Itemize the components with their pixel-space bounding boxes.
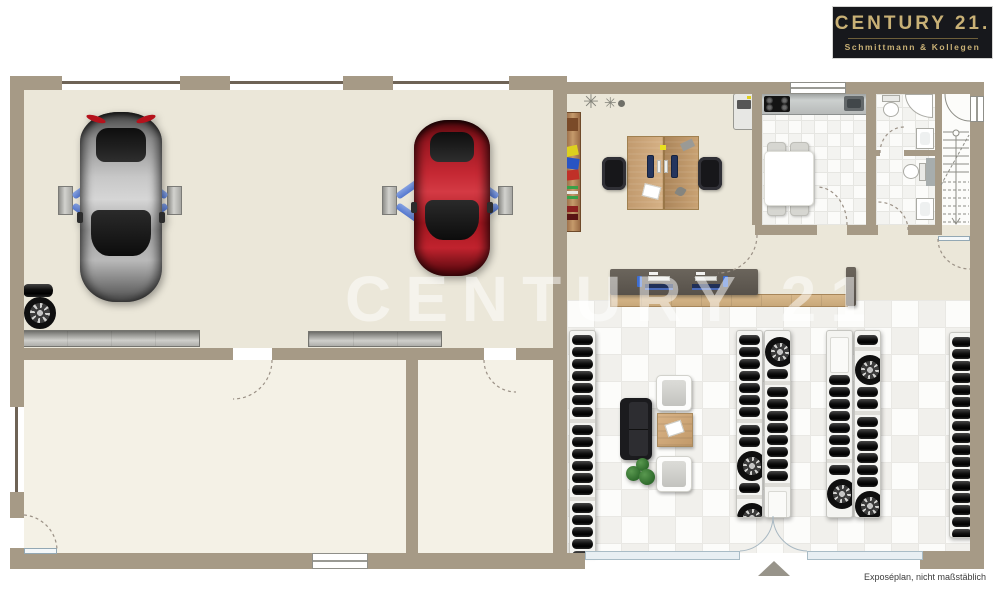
- tire-side: [739, 483, 760, 493]
- toilet-tank: [919, 163, 926, 181]
- stairwell-floor: [942, 94, 970, 225]
- tire-side: [952, 433, 972, 443]
- wall-bottom-a: [10, 553, 312, 569]
- armchair: [656, 375, 692, 411]
- basin-bowl: [920, 202, 930, 216]
- tire-side: [572, 371, 593, 381]
- tire-side: [829, 411, 850, 421]
- shelf-divider: [765, 483, 790, 487]
- kitchen-sink: [844, 96, 864, 111]
- wheel-face-item: [827, 479, 853, 509]
- garage-door-band: [10, 81, 567, 84]
- counter-device: [723, 276, 728, 287]
- wall-top-right-a: [553, 82, 790, 94]
- wall-top-pillar-2: [180, 76, 230, 90]
- tire-side: [857, 453, 878, 463]
- tire-side: [739, 347, 760, 357]
- burner: [781, 104, 788, 111]
- tire-side: [952, 517, 972, 527]
- workbench-left: [22, 330, 200, 347]
- tire-side: [952, 349, 972, 359]
- tire-side: [952, 481, 972, 491]
- shelf-binder: [566, 196, 578, 199]
- sticky-note: [660, 145, 666, 150]
- wall-kitchen-wc: [866, 94, 876, 225]
- side-mirror: [411, 202, 417, 213]
- storage-room-left-floor: [24, 360, 406, 553]
- tire-side: [857, 465, 878, 475]
- basin-bowl: [920, 132, 930, 145]
- spare-wheel: [24, 297, 56, 329]
- shelf-books: [566, 214, 578, 220]
- counter-wood-front: [610, 294, 848, 307]
- tire-side: [572, 461, 593, 471]
- tire-side: [739, 407, 760, 417]
- scale-disclaimer: Exposéplan, nicht maßstäblich: [864, 572, 986, 582]
- shelf-divider: [827, 459, 852, 463]
- tire-side: [857, 417, 878, 427]
- wall-workshop-divider-a: [10, 348, 233, 360]
- coat-stand-base: [618, 100, 625, 107]
- shelf-box: [566, 118, 578, 131]
- tire-side: [572, 485, 593, 495]
- counter-monitor: [692, 284, 720, 290]
- armchair-seat: [662, 380, 686, 406]
- plant-leaves: [639, 469, 655, 485]
- toilet-bowl: [903, 164, 919, 179]
- wall-wc-stairs: [935, 94, 942, 225]
- wheel-face-item: [737, 451, 763, 481]
- keyboard: [657, 160, 661, 173]
- lift-post: [498, 186, 513, 215]
- tire-side: [857, 399, 878, 409]
- tire-side: [767, 459, 788, 469]
- side-mirror: [77, 212, 83, 223]
- counter-keyboard: [648, 276, 670, 281]
- side-mirror: [159, 212, 165, 223]
- tire-side: [572, 437, 593, 447]
- logo-subtitle: Schmittmann & Kollegen: [845, 42, 981, 52]
- tire-side: [857, 429, 878, 439]
- burner: [766, 97, 773, 104]
- tire-side: [952, 409, 972, 419]
- tire-side: [767, 399, 788, 409]
- tire-side: [739, 359, 760, 369]
- wall-top-pillar-3: [343, 76, 393, 90]
- lift-post: [58, 186, 73, 215]
- wall-wc-bottom-a: [847, 225, 878, 235]
- office-chair: [698, 157, 722, 190]
- tire-side: [952, 529, 972, 538]
- lift-post: [382, 186, 397, 215]
- wheel-face-item: [855, 491, 881, 518]
- counter-monitor: [645, 284, 673, 290]
- shelf-divider: [570, 497, 595, 501]
- red-car: [414, 120, 490, 276]
- workbench-right: [308, 331, 442, 347]
- tire-side: [739, 371, 760, 381]
- coat-stand: ✳: [583, 93, 599, 112]
- washbasin: [916, 128, 934, 149]
- tire-side: [829, 447, 850, 457]
- wall-top-right-b: [846, 82, 984, 94]
- plant: [626, 458, 656, 486]
- counter-card: [696, 272, 705, 275]
- tire-side: [572, 347, 593, 357]
- tire-side: [572, 539, 593, 549]
- storefront-glass-left: [585, 551, 740, 560]
- coat-stand: ✳: [604, 96, 617, 111]
- wall-bottom-b: [368, 553, 585, 569]
- counter-keyboard: [695, 276, 717, 281]
- empty-shelf: [768, 491, 788, 518]
- tire-side: [572, 473, 593, 483]
- wall-right: [970, 82, 984, 569]
- tire-side: [767, 423, 788, 433]
- tire-side: [829, 375, 850, 385]
- silver-car: [80, 112, 162, 302]
- wall-office-kitchen: [752, 94, 762, 225]
- cooktop: [764, 96, 790, 112]
- tire-side: [767, 471, 788, 481]
- wheel-face-item: [737, 503, 763, 518]
- tire-side: [952, 505, 972, 515]
- rack-mid-a1: [736, 330, 763, 518]
- tire-side: [572, 527, 593, 537]
- shelf-binder: [566, 186, 578, 189]
- wall-room-divider: [406, 352, 418, 553]
- office-chair: [602, 157, 626, 190]
- storefront-glass-right: [807, 551, 923, 560]
- kitchen-window: [790, 82, 846, 94]
- armchair-seat: [662, 461, 686, 487]
- tire-side: [952, 397, 972, 407]
- wall-kitchen-bottom: [755, 225, 817, 235]
- shelf-divider: [765, 381, 790, 385]
- tire-side: [857, 387, 878, 397]
- armchair: [656, 456, 692, 492]
- tire-side: [767, 369, 788, 379]
- tire-side: [739, 437, 760, 447]
- wall-left-window-band: [15, 407, 18, 492]
- tire-side: [572, 335, 593, 345]
- tire-side: [572, 449, 593, 459]
- storage-window: [312, 553, 368, 569]
- tire-side: [572, 515, 593, 525]
- tire-side: [952, 469, 972, 479]
- tire-side: [572, 503, 593, 513]
- toilet-tank: [882, 95, 900, 102]
- rack-left-wall: [569, 330, 596, 555]
- windshield: [425, 200, 479, 240]
- left-door-leaf: [24, 548, 57, 554]
- stairwell-window: [970, 96, 984, 122]
- tire-side: [829, 423, 850, 433]
- wall-wc-divider-a: [876, 150, 880, 156]
- tire-side: [829, 399, 850, 409]
- tire-side: [739, 383, 760, 393]
- century21-logo: CENTURY 21. Schmittmann & Kollegen: [833, 7, 992, 58]
- rear-window: [96, 128, 146, 162]
- shelf-divider: [737, 495, 762, 499]
- wall-workshop-divider-b: [272, 348, 484, 360]
- washbasin: [916, 198, 934, 220]
- sofa-seam: [629, 429, 648, 430]
- windshield: [91, 210, 151, 256]
- rack-mid-a2: [764, 330, 791, 518]
- sink-basin: [847, 99, 861, 108]
- tire-side: [739, 335, 760, 345]
- burner: [781, 97, 788, 104]
- spare-tire: [23, 284, 53, 297]
- shelf-binder: [566, 191, 578, 194]
- tire-side: [952, 361, 972, 371]
- logo-divider: [848, 38, 978, 39]
- tire-side: [572, 425, 593, 435]
- tire-side: [572, 407, 593, 417]
- dining-table: [764, 151, 814, 206]
- shelf-divider: [737, 419, 762, 423]
- tire-side: [572, 359, 593, 369]
- lift-post: [167, 186, 182, 215]
- side-mirror: [487, 202, 493, 213]
- wall-left-pillar: [10, 492, 24, 518]
- tire-side: [572, 395, 593, 405]
- tire-side: [952, 493, 972, 503]
- sofa: [620, 398, 652, 460]
- logo-title: CENTURY 21.: [835, 13, 990, 35]
- wall-bottom-c: [920, 551, 984, 569]
- rack-mid-b1: [826, 330, 853, 518]
- storage-room-middle-floor: [418, 360, 553, 553]
- burner: [766, 104, 773, 111]
- shelf-books: [566, 206, 578, 212]
- entrance-arrow: [758, 561, 790, 576]
- toilet-bowl: [883, 102, 899, 117]
- shelf-divider: [570, 419, 595, 423]
- monitor: [672, 156, 677, 177]
- tire-side: [952, 385, 972, 395]
- rack-mid-b2: [854, 330, 881, 518]
- wall-wc-bottom-b: [908, 225, 942, 235]
- wall-wc-divider-b: [904, 150, 935, 156]
- tire-side: [829, 435, 850, 445]
- rear-window: [430, 132, 474, 162]
- tire-side: [739, 395, 760, 405]
- wall-center-vertical: [553, 82, 567, 553]
- tire-side: [829, 465, 850, 475]
- tire-side: [952, 445, 972, 455]
- tire-side: [572, 383, 593, 393]
- counter-device: [637, 276, 642, 287]
- empty-shelf: [830, 337, 850, 373]
- wheel-face-item: [765, 337, 791, 367]
- tire-side: [952, 337, 972, 347]
- keyboard: [664, 160, 668, 173]
- tire-side: [739, 425, 760, 435]
- tire-side: [857, 441, 878, 451]
- corridor-door-leaf: [938, 236, 970, 241]
- shelf-divider: [855, 347, 880, 351]
- tire-side: [952, 421, 972, 431]
- shelf-divider: [855, 411, 880, 415]
- tire-side: [829, 387, 850, 397]
- tire-side: [952, 457, 972, 467]
- tire-side: [767, 411, 788, 421]
- floorplan-canvas: ✳ ✳: [0, 0, 1000, 598]
- printer-led: [747, 96, 751, 99]
- wheel-face-item: [855, 355, 881, 385]
- wc-panel: [926, 158, 935, 186]
- tire-side: [857, 335, 878, 345]
- monitor: [648, 156, 653, 177]
- shelf-folder-red: [566, 169, 580, 180]
- reception-counter: [610, 269, 758, 295]
- counter-card: [649, 272, 658, 275]
- counter-end-post: [846, 267, 856, 306]
- tire-side: [767, 387, 788, 397]
- tire-side: [767, 435, 788, 445]
- tire-side: [857, 477, 878, 487]
- tire-side: [952, 373, 972, 383]
- tire-side: [767, 447, 788, 457]
- printer-tray: [737, 100, 751, 109]
